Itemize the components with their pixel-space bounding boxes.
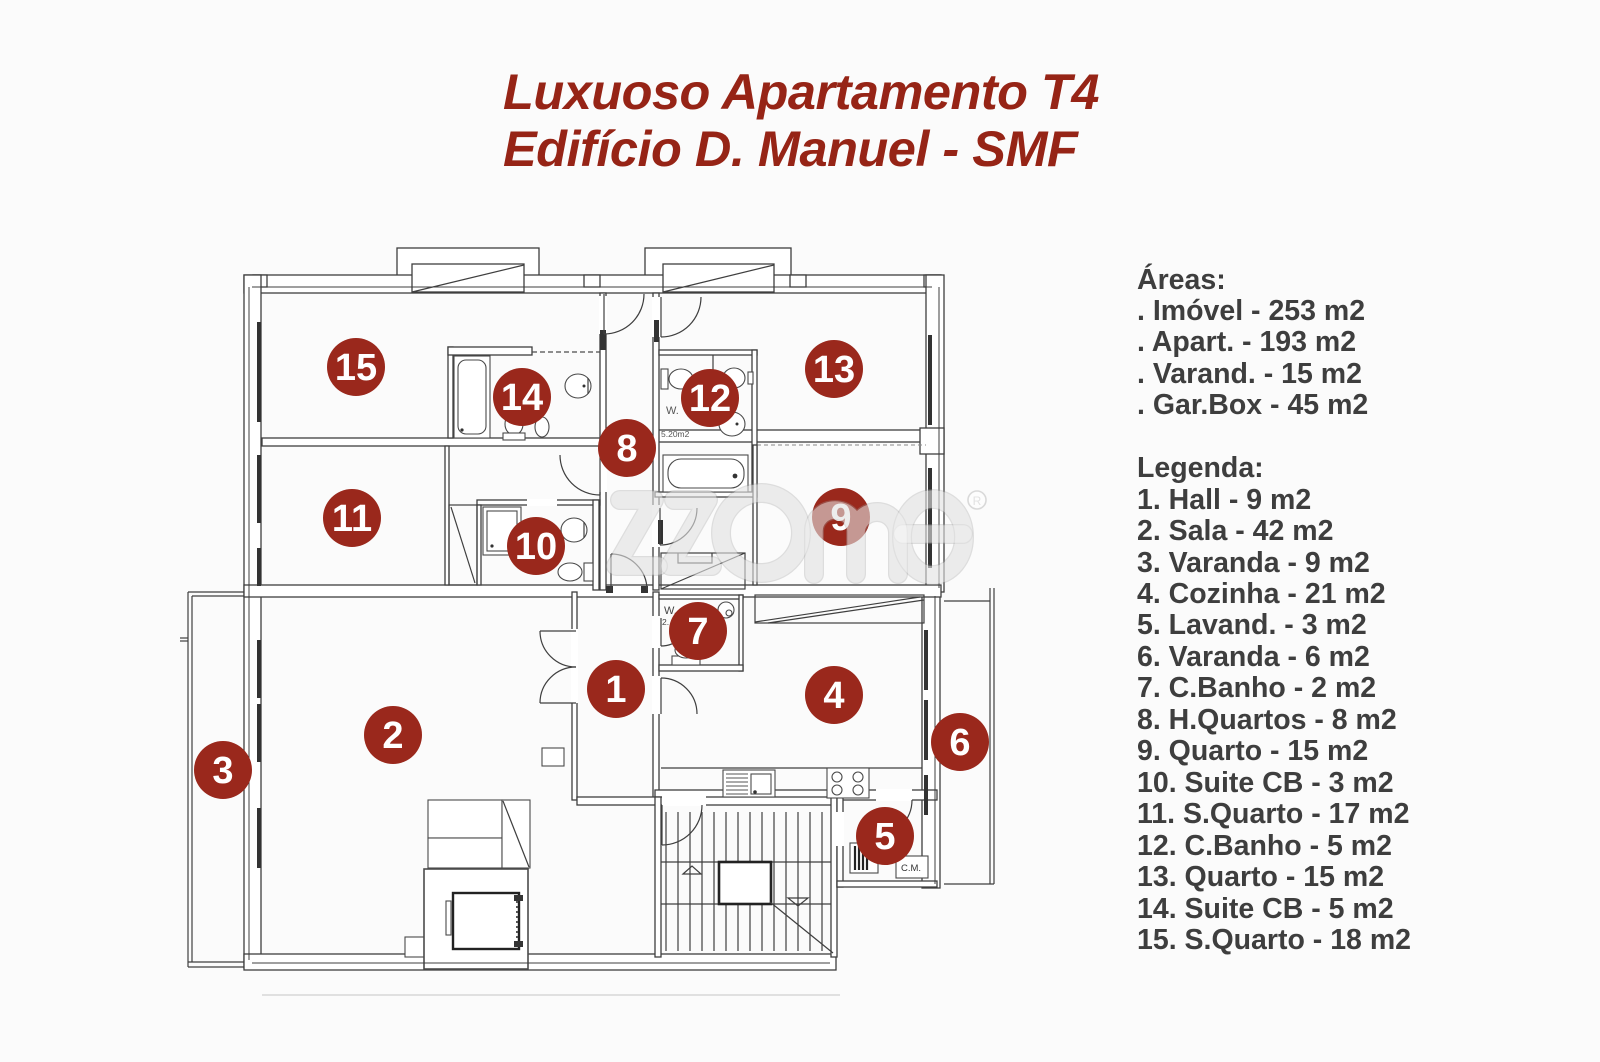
svg-text:2: 2 bbox=[382, 715, 403, 757]
svg-text:1: 1 bbox=[605, 669, 626, 711]
svg-text:W.: W. bbox=[666, 405, 679, 417]
svg-text:5: 5 bbox=[874, 816, 895, 858]
svg-text:3: 3 bbox=[212, 750, 233, 792]
svg-text:11: 11 bbox=[332, 498, 372, 540]
svg-text:12: 12 bbox=[689, 378, 731, 420]
svg-text:15: 15 bbox=[335, 347, 377, 389]
svg-text:14: 14 bbox=[501, 377, 543, 419]
svg-text:7: 7 bbox=[687, 611, 708, 653]
svg-text:13: 13 bbox=[813, 349, 855, 391]
svg-text:8: 8 bbox=[616, 428, 637, 470]
svg-text:6: 6 bbox=[949, 722, 970, 764]
svg-text:C.M.: C.M. bbox=[901, 863, 921, 874]
svg-text:R: R bbox=[973, 494, 982, 508]
svg-text:5.20m2: 5.20m2 bbox=[661, 429, 690, 439]
svg-text:4: 4 bbox=[823, 675, 844, 717]
svg-text:10: 10 bbox=[515, 526, 557, 568]
svg-text:2.: 2. bbox=[662, 617, 669, 627]
